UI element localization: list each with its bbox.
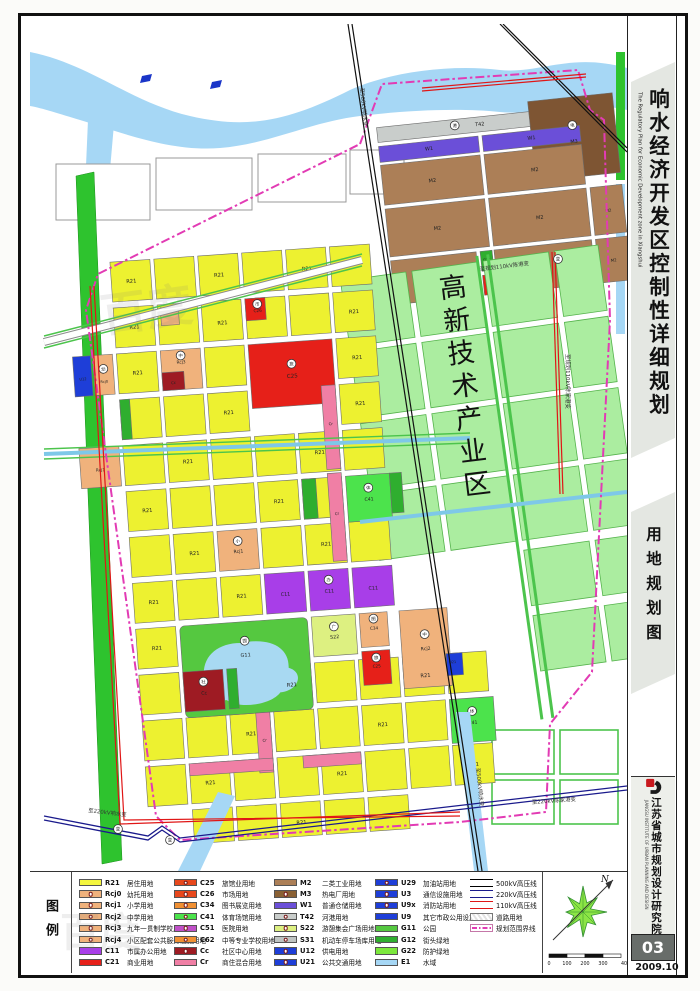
legend-code: Cc: [200, 947, 219, 955]
legend-line-item: 规划范围界线: [470, 923, 542, 934]
legend-swatch: [79, 925, 102, 932]
legend-code: M2: [300, 879, 319, 887]
svg-text:R21: R21: [148, 600, 159, 607]
legend-swatch: [375, 959, 398, 966]
svg-text:N: N: [600, 875, 610, 885]
legend-title: 图例: [30, 872, 72, 973]
institute-block: JIANGSU INSTITUTE OF URBAN PLANNING AND …: [631, 776, 675, 935]
legend-item: Rcj4小区配套公共服务设施用地: [79, 934, 174, 945]
svg-text:C34: C34: [370, 625, 379, 631]
institute-chinese: 江苏省城市规划设计研究院: [649, 797, 664, 935]
svg-text:200: 200: [580, 961, 589, 967]
legend-swatch: [174, 959, 197, 966]
svg-text:R21: R21: [314, 450, 325, 457]
legend-columns: R21居住用地Rcj0幼托用地Rcj1小学用地Rcj2中学用地Rcj3九年一贯制…: [72, 872, 542, 973]
legend-label: 消防站用地: [423, 900, 456, 910]
legend-swatch: [375, 936, 398, 943]
compass-rose-icon: N0100200300400M: [543, 872, 627, 971]
legend-label: 旅馆业用地: [222, 878, 255, 888]
svg-text:R21: R21: [142, 508, 153, 515]
legend-code: Rcj2: [105, 913, 124, 921]
legend-swatch: [79, 902, 102, 909]
legend-line-column: 500kV高压线220kV高压线110kV高压线道路用地规划范围界线: [470, 877, 542, 973]
legend-code: G11: [401, 924, 420, 932]
svg-text:W1: W1: [425, 146, 434, 153]
svg-text:R21: R21: [355, 401, 366, 408]
svg-text:R21: R21: [337, 771, 348, 778]
legend-label: 机动车停车场库用地: [322, 935, 381, 945]
svg-text:Cr: Cr: [328, 421, 333, 426]
legend-item: E1水域: [375, 957, 470, 968]
svg-text:至规划110kV陈家港变: 至规划110kV陈家港变: [564, 354, 572, 409]
legend-column: C25旅馆业用地C26市场用地C34图书展览用地C41体育场馆用地C51医院用地…: [174, 877, 274, 973]
legend-code: C26: [200, 890, 219, 898]
legend-line-item: 220kV高压线: [470, 888, 542, 899]
legend-swatch: [79, 879, 102, 886]
legend-label: 普通仓储用地: [322, 900, 362, 910]
legend-swatch: [174, 890, 197, 897]
svg-text:R21: R21: [132, 370, 143, 377]
scanned-plan-sheet: T42W1W1M2M2M2M2M2M2M3M2M2C21G12电港: [0, 0, 700, 991]
legend-code: U21: [300, 958, 319, 966]
legend-code: U9x: [401, 901, 420, 909]
title-chinese: 响水经济开发区控制性详细规划: [643, 88, 673, 458]
svg-text:R21: R21: [236, 593, 247, 600]
compass-cell: N0100200300400M: [542, 872, 627, 973]
svg-text:C11: C11: [368, 585, 378, 592]
legend-label: 道路用地: [496, 912, 522, 922]
legend-line-swatch: [470, 901, 493, 909]
title-sidebar: The Regulatory Plan for Economic Develop…: [627, 16, 686, 975]
sheet-number: 03: [631, 934, 675, 961]
legend-swatch: [79, 947, 102, 954]
legend-code: Rcj0: [105, 890, 124, 898]
legend-swatch: [174, 925, 197, 932]
legend-line-swatch: [470, 890, 493, 898]
svg-text:T42: T42: [474, 121, 485, 128]
legend-item: C11市属办公用地: [79, 945, 174, 956]
legend-label: 体育场馆用地: [222, 912, 262, 922]
legend-item: G12街头绿地: [375, 934, 470, 945]
legend-swatch: [274, 959, 297, 966]
legend-code: Cr: [200, 958, 219, 966]
title-plate: The Regulatory Plan for Economic Develop…: [631, 62, 675, 458]
legend-item: Rcj1小学用地: [79, 900, 174, 911]
legend-code: C62: [200, 936, 219, 944]
legend: 图例 R21居住用地Rcj0幼托用地Rcj1小学用地Rcj2中学用地Rcj3九年…: [30, 871, 627, 973]
svg-text:C25: C25: [287, 373, 299, 380]
legend-label: 通信设施用地: [423, 889, 463, 899]
legend-label: 220kV高压线: [496, 889, 537, 899]
legend-label: 500kV高压线: [496, 878, 537, 888]
map-area: T42W1W1M2M2M2M2M2M2M3M2M2C21G12电港: [30, 24, 627, 871]
legend-code: R21: [105, 879, 124, 887]
svg-text:变: 变: [116, 826, 121, 833]
legend-label: 加油站用地: [423, 878, 456, 888]
legend-item: T42河港用地: [274, 911, 375, 922]
svg-text:C25: C25: [372, 663, 381, 669]
legend-line-swatch: [470, 924, 493, 932]
svg-text:W1: W1: [527, 135, 536, 142]
title-english: The Regulatory Plan for Economic Develop…: [634, 92, 643, 458]
legend-code: U29: [401, 879, 420, 887]
svg-text:M2: M2: [428, 178, 436, 185]
legend-item: G11公园: [375, 923, 470, 934]
legend-column: R21居住用地Rcj0幼托用地Rcj1小学用地Rcj2中学用地Rcj3九年一贯制…: [79, 877, 174, 973]
legend-swatch: [274, 879, 297, 886]
legend-item: C25旅馆业用地: [174, 877, 274, 888]
legend-code: C34: [200, 901, 219, 909]
legend-item: U3通信设施用地: [375, 888, 470, 899]
legend-swatch: [79, 936, 102, 943]
legend-code: Rcj4: [105, 936, 124, 944]
legend-item: Rcj0幼托用地: [79, 888, 174, 899]
svg-text:R21: R21: [223, 410, 234, 417]
legend-label: 幼托用地: [127, 889, 153, 899]
planning-map: T42W1W1M2M2M2M2M2M2M3M2M2C21G12电港: [30, 24, 627, 871]
sheet-frame: T42W1W1M2M2M2M2M2M2M3M2M2C21G12电港: [18, 13, 688, 978]
sheet-name: 用地规划图: [642, 526, 664, 694]
legend-item: Rcj3九年一贯制学校用地: [79, 923, 174, 934]
legend-item: G22防护绿地: [375, 945, 470, 956]
legend-code: U12: [300, 947, 319, 955]
legend-item: M2二类工业用地: [274, 877, 375, 888]
svg-text:G11: G11: [240, 652, 251, 659]
legend-label: 医院用地: [222, 923, 248, 933]
svg-text:U12: U12: [79, 377, 86, 381]
svg-text:M2: M2: [536, 215, 544, 222]
legend-code: S22: [300, 924, 319, 932]
legend-item: C62中等专业学校用地: [174, 934, 274, 945]
svg-text:C11: C11: [281, 591, 291, 598]
legend-line-item: 道路用地: [470, 911, 542, 922]
svg-text:R21: R21: [214, 272, 225, 279]
legend-label: 市场用地: [222, 889, 248, 899]
legend-code: M3: [300, 890, 319, 898]
legend-swatch: [375, 913, 398, 920]
svg-text:R21: R21: [126, 278, 137, 285]
legend-label: 商住混合用地: [222, 957, 262, 967]
legend-code: C51: [200, 924, 219, 932]
svg-text:M2: M2: [610, 257, 617, 263]
legend-swatch: [274, 902, 297, 909]
svg-text:R21: R21: [378, 722, 389, 729]
legend-item: M3热电厂用地: [274, 888, 375, 899]
legend-code: G12: [401, 936, 420, 944]
legend-item: U29加油站用地: [375, 877, 470, 888]
legend-label: 中学用地: [127, 912, 153, 922]
legend-swatch: [79, 959, 102, 966]
legend-label: 游憩集会广场用地: [322, 923, 375, 933]
svg-text:Cc: Cc: [171, 380, 176, 385]
sheet-date: 2009.10: [628, 962, 686, 973]
legend-code: C21: [105, 958, 124, 966]
legend-item: C26市场用地: [174, 888, 274, 899]
legend-label: 供电用地: [322, 946, 348, 956]
svg-text:Cc: Cc: [201, 690, 208, 696]
legend-label: 河港用地: [322, 912, 348, 922]
svg-text:变: 变: [168, 837, 173, 844]
sidebar-divider: [676, 16, 677, 975]
svg-text:Cr: Cr: [335, 511, 340, 516]
legend-swatch: [375, 947, 398, 954]
svg-text:R21: R21: [321, 541, 332, 548]
legend-label: 图书展览用地: [222, 900, 262, 910]
legend-label: 小学用地: [127, 900, 153, 910]
svg-text:R21: R21: [189, 551, 200, 558]
legend-swatch: [375, 902, 398, 909]
svg-text:M2: M2: [531, 167, 539, 174]
legend-item: S22游憩集会广场用地: [274, 923, 375, 934]
legend-item: R21居住用地: [79, 877, 174, 888]
legend-line-swatch: [470, 913, 493, 921]
legend-item: U21公共交通用地: [274, 957, 375, 968]
legend-swatch: [79, 890, 102, 897]
legend-swatch: [174, 936, 197, 943]
svg-text:R21: R21: [183, 459, 194, 466]
legend-swatch: [174, 947, 197, 954]
legend-code: Rcj1: [105, 901, 124, 909]
svg-text:S22: S22: [330, 634, 340, 641]
legend-label: 市属办公用地: [127, 946, 167, 956]
legend-code: C41: [200, 913, 219, 921]
legend-column: M2二类工业用地M3热电厂用地W1普通仓储用地T42河港用地S22游憩集会广场用…: [274, 877, 375, 973]
legend-item: U9x消防站用地: [375, 900, 470, 911]
svg-text:300: 300: [598, 961, 607, 967]
legend-item: U12供电用地: [274, 945, 375, 956]
svg-text:100: 100: [562, 961, 571, 967]
legend-item: C51医院用地: [174, 923, 274, 934]
legend-label: 中等专业学校用地: [222, 935, 275, 945]
svg-text:M3: M3: [570, 139, 578, 146]
legend-code: C11: [105, 947, 124, 955]
legend-swatch: [174, 902, 197, 909]
svg-text:R21: R21: [287, 682, 298, 689]
svg-text:M2: M2: [433, 225, 441, 232]
legend-label: 防护绿地: [423, 946, 449, 956]
svg-text:变: 变: [556, 256, 561, 263]
legend-label: 居住用地: [127, 878, 153, 888]
svg-text:R21: R21: [246, 731, 257, 738]
svg-text:R21: R21: [349, 309, 360, 316]
legend-label: 110kV高压线: [496, 900, 537, 910]
svg-text:R21: R21: [352, 355, 363, 362]
svg-text:R21: R21: [217, 320, 228, 327]
legend-item: Cr商住混合用地: [174, 957, 274, 968]
legend-swatch: [274, 913, 297, 920]
legend-code: S31: [300, 936, 319, 944]
legend-code: U9: [401, 913, 420, 921]
svg-text:Cr: Cr: [262, 737, 267, 742]
legend-column: U29加油站用地U3通信设施用地U9x消防站用地U9其它市政公用设施用地G11公…: [375, 877, 470, 973]
svg-text:C11: C11: [325, 588, 335, 595]
legend-swatch: [274, 925, 297, 932]
legend-swatch: [274, 947, 297, 954]
legend-swatch: [174, 879, 197, 886]
svg-text:R21: R21: [205, 780, 216, 787]
legend-code: T42: [300, 913, 319, 921]
legend-code: C25: [200, 879, 219, 887]
legend-label: 商业用地: [127, 957, 153, 967]
legend-line-swatch: [470, 879, 493, 887]
legend-code: W1: [300, 901, 319, 909]
svg-text:Rcj0: Rcj0: [100, 380, 109, 385]
legend-label: 规划范围界线: [496, 923, 536, 933]
legend-line-item: 500kV高压线: [470, 877, 542, 888]
svg-text:C41: C41: [364, 496, 374, 503]
legend-code: G22: [401, 947, 420, 955]
legend-label: 水域: [423, 957, 436, 967]
legend-label: 公共交通用地: [322, 957, 362, 967]
svg-text:R21: R21: [152, 645, 163, 652]
svg-text:Rcj2: Rcj2: [421, 646, 431, 653]
legend-swatch: [274, 890, 297, 897]
institute-english: JIANGSU INSTITUTE OF URBAN PLANNING AND …: [642, 800, 649, 935]
legend-item: U9其它市政公用设施用地: [375, 911, 470, 922]
legend-line-item: 110kV高压线: [470, 900, 542, 911]
legend-code: E1: [401, 958, 420, 966]
legend-item: C41体育场馆用地: [174, 911, 274, 922]
legend-item: Cc社区中心用地: [174, 945, 274, 956]
legend-label: 街头绿地: [423, 935, 449, 945]
legend-swatch: [375, 879, 398, 886]
legend-item: W1普通仓储用地: [274, 900, 375, 911]
legend-label: 社区中心用地: [222, 946, 262, 956]
legend-swatch: [274, 936, 297, 943]
legend-code: Rcj3: [105, 924, 124, 932]
legend-item: C21商业用地: [79, 957, 174, 968]
svg-text:Rcj1: Rcj1: [233, 549, 243, 556]
institute-logo: [638, 777, 668, 797]
legend-swatch: [375, 925, 398, 932]
legend-swatch: [174, 913, 197, 920]
svg-text:R21: R21: [274, 499, 285, 506]
legend-swatch: [79, 913, 102, 920]
legend-item: S31机动车停车场库用地: [274, 934, 375, 945]
sheet-name-plate: 用地规划图: [631, 492, 675, 694]
svg-text:0: 0: [547, 961, 550, 967]
legend-label: 公园: [423, 923, 436, 933]
legend-item: Rcj2中学用地: [79, 911, 174, 922]
svg-text:R21: R21: [420, 673, 431, 680]
legend-label: 二类工业用地: [322, 878, 362, 888]
legend-item: C34图书展览用地: [174, 900, 274, 911]
legend-code: U3: [401, 890, 420, 898]
legend-swatch: [375, 890, 398, 897]
legend-label: 热电厂用地: [322, 889, 355, 899]
